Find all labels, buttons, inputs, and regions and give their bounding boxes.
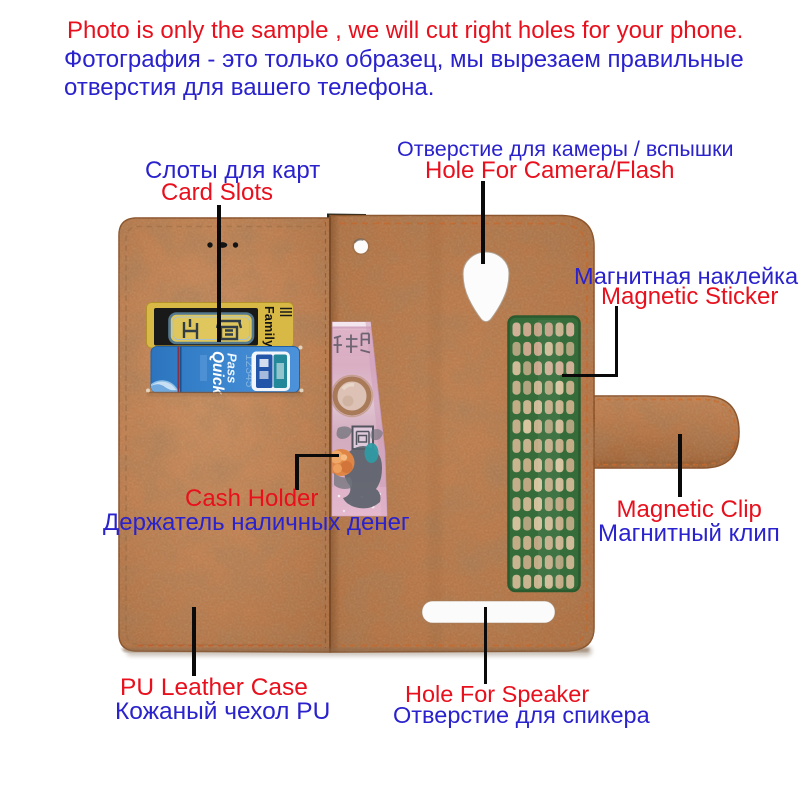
svg-text:Pass: Pass xyxy=(225,353,240,383)
svg-text:Quick: Quick xyxy=(209,351,226,395)
svg-text:Family: Family xyxy=(262,306,276,347)
